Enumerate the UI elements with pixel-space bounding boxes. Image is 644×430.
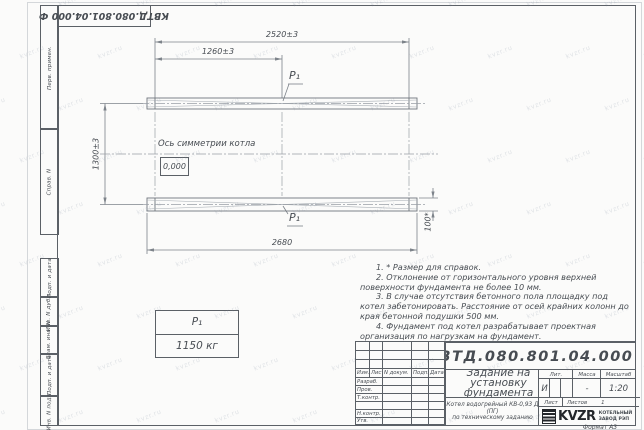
dim-beam-width: 100*	[424, 212, 433, 231]
tb-col-podp: Подп.	[412, 369, 429, 378]
tb-scale-value: 1:20	[600, 378, 636, 398]
tb-row-prov: Пров.	[356, 386, 383, 394]
tb-sheets-label: Листов	[567, 400, 587, 406]
load-point-label-top: P₁	[289, 69, 300, 82]
tb-col-data: Дата	[429, 369, 445, 378]
tb-designation: КВТД.080.801.04.000 Ф	[445, 342, 636, 370]
load-table: P₁ 1150 кг	[155, 310, 239, 358]
tb-product-name: Котел водогрейный КВ-0,93 Д (ПГ) по техн…	[445, 397, 539, 426]
tb-row-nkontr: Н.контр.	[356, 410, 383, 418]
load-table-value: 1150 кг	[156, 335, 238, 358]
tb-mass-value: -	[572, 378, 601, 398]
load-point-label-bottom: P₁	[289, 211, 300, 224]
title-block-revision-grid: Изм. Лист N докум. Подп. Дата Разраб. Пр…	[356, 342, 445, 425]
format-label: Формат А3	[566, 424, 634, 430]
tb-col-doc: N докум.	[383, 369, 412, 378]
dim-overall-top: 2520±3	[266, 30, 298, 39]
tb-row-tkontr: Т.контр.	[356, 394, 383, 402]
tb-col-list: Лист	[370, 369, 383, 378]
boiler-axis-label: Ось симметрии котла	[158, 139, 255, 149]
drawing-sheet: КВТД.080.801.04.000 Ф Перв. примен. Спра…	[0, 0, 644, 430]
dim-half-top: 1260±3	[202, 47, 234, 56]
kvzr-logo-text: KVZR	[558, 409, 596, 424]
notes-block: 1. * Размер для справок. 2. Отклонение о…	[360, 263, 632, 341]
tb-row-blank	[356, 402, 383, 410]
tb-document-title: Задание на установку фундамента	[445, 369, 551, 398]
load-table-name: P₁	[156, 311, 238, 335]
note-3: 3. В случае отсутствия бетонного пола пл…	[360, 292, 632, 321]
company-name: КОТЕЛЬНЫЙ ЗАВОД РЭП	[599, 411, 633, 421]
tb-row-razrab: Разраб.	[356, 378, 383, 386]
tb-row-utv: Утв.	[356, 418, 383, 425]
elevation-mark: 0,000	[160, 157, 189, 176]
tb-company-cell: KVZR КОТЕЛЬНЫЙ ЗАВОД РЭП	[538, 406, 639, 426]
tb-col-izm: Изм.	[356, 369, 370, 378]
note-4: 4. Фундамент под котел разрабатывает про…	[360, 322, 632, 342]
dim-height: 1300±3	[92, 138, 101, 170]
tb-sheets-value: 1	[601, 400, 604, 406]
dim-overall-bottom: 2680	[272, 238, 292, 247]
title-block: Изм. Лист N докум. Подп. Дата Разраб. Пр…	[355, 341, 636, 426]
kvzr-logo-icon	[542, 409, 556, 424]
note-2: 2. Отклонение от горизонтального уровня …	[360, 273, 632, 293]
